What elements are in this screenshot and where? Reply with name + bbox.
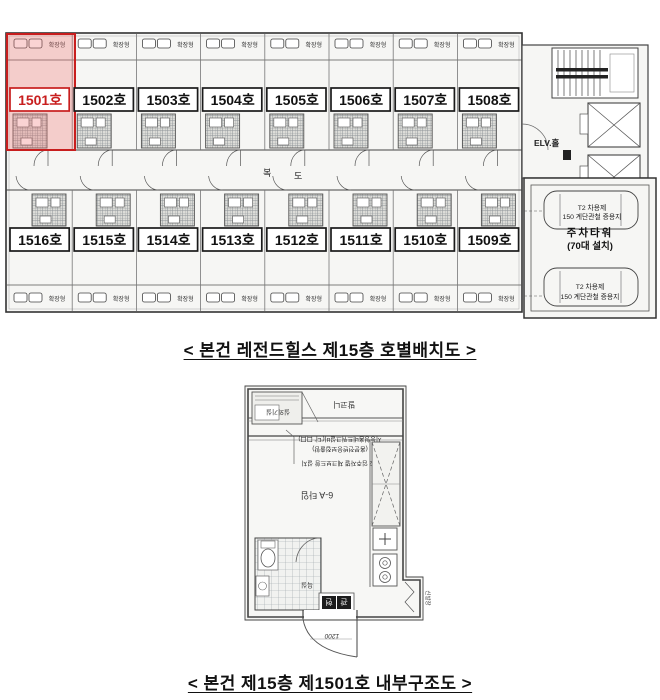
parking-note-bottom-1: T2 차용제 (576, 282, 605, 291)
strip-label: 확장형 (241, 41, 258, 49)
entrance-char-2: 관 (340, 597, 348, 607)
strip-label: 확장형 (434, 295, 451, 303)
unit-label: 1505호 (275, 92, 319, 108)
unit-label: 1513호 (211, 232, 255, 248)
note-line-1: 지능형홈네트워크설비('디' 口口) (298, 435, 381, 443)
strip-label: 확장형 (306, 41, 323, 49)
note-line-3: T/2 입주자별 체크보드함 설치 (302, 459, 379, 467)
ac-unit-icon (414, 39, 427, 48)
unit-label: 1515호 (82, 232, 126, 248)
ac-unit-icon (157, 293, 170, 302)
ac-unit-icon (207, 293, 220, 302)
bathroom: 욕실 (255, 538, 321, 610)
ac-unit-icon (78, 293, 91, 302)
document-page: 확장형확장형확장형확장형확장형확장형확장형확장형확장형확장형확장형확장형확장형확… (0, 0, 660, 700)
ac-unit-icon (142, 39, 155, 48)
elevator-shaft-1 (580, 103, 640, 147)
ac-unit-icon (399, 39, 412, 48)
room-type-label: 6-A 타입 (301, 490, 334, 501)
balcony-label: 발코니 (333, 400, 355, 410)
unit-label: 1503호 (146, 92, 190, 108)
strip-label: 확장형 (306, 295, 323, 303)
ac-unit-icon (478, 39, 491, 48)
outdoor-unit-room-label: 실외기실 (266, 408, 290, 417)
ac-unit-icon (335, 293, 348, 302)
entrance-label: 현 관 (319, 593, 354, 612)
parking-title: 주차타워 (567, 226, 614, 239)
ac-unit-icon (286, 293, 299, 302)
ac-unit-icon (350, 293, 363, 302)
unit-label: 1507호 (403, 92, 447, 108)
ac-unit-icon (286, 39, 299, 48)
ac-unit-icon (271, 293, 284, 302)
ac-unit-icon (14, 293, 27, 302)
shoe-closet-label: 신발장 (424, 590, 432, 605)
unit-plan-caption: < 본건 제15층 제1501호 내부구조도 > (0, 669, 660, 694)
strip-label: 확장형 (434, 41, 451, 49)
ac-unit-icon (78, 39, 91, 48)
strip-label: 확장형 (370, 295, 387, 303)
bathroom-sink (256, 576, 269, 596)
parking-capacity: (70대 설치) (567, 240, 613, 252)
unit-label: 1506호 (339, 92, 383, 108)
shaft-closet (372, 442, 400, 526)
floor-plan-15f: 확장형확장형확장형확장형확장형확장형확장형확장형확장형확장형확장형확장형확장형확… (0, 28, 660, 324)
unit-label: 1516호 (18, 232, 62, 248)
ac-unit-icon (414, 293, 427, 302)
unit-plan-caption-text: < 본건 제15층 제1501호 내부구조도 > (188, 674, 472, 693)
unit-label: 1514호 (146, 232, 190, 248)
strip-label: 확장형 (177, 41, 194, 49)
ac-unit-icon (29, 293, 42, 302)
strip-label: 확장형 (241, 295, 258, 303)
ac-unit-icon (335, 39, 348, 48)
parking-note-top-2: 150 계단관철 증용지 (563, 212, 622, 221)
strip-label: 확장형 (49, 295, 66, 303)
elevator-hall-label: ELV.홀 (534, 138, 559, 148)
elevator-hall-marker (563, 150, 571, 160)
parking-note-bottom-2: 150 계단관철 증용지 (561, 292, 620, 301)
strip-label: 확장형 (498, 295, 515, 303)
ac-unit-icon (463, 39, 476, 48)
ac-unit-icon (271, 39, 284, 48)
ac-unit-icon (463, 293, 476, 302)
unit-label: 1508호 (467, 92, 511, 108)
bathroom-label: 욕실 (301, 581, 313, 590)
unit-label: 1512호 (275, 232, 319, 248)
toilet (261, 549, 275, 567)
unit-label: 1504호 (211, 92, 255, 108)
ac-unit-icon (478, 293, 491, 302)
strip-label: 확장형 (370, 41, 387, 49)
entrance-char-1: 현 (325, 597, 332, 606)
ac-unit-icon (93, 39, 106, 48)
door-width-dimension: 1200 (324, 632, 339, 639)
ac-unit-icon (222, 293, 235, 302)
unit-label: 1502호 (82, 92, 126, 108)
strip-label: 확장형 (177, 295, 194, 303)
ac-unit-icon (207, 39, 220, 48)
entrance-door: 1200 (303, 610, 357, 657)
ac-unit-icon (157, 39, 170, 48)
unit-label: 1509호 (467, 232, 511, 248)
unit-label: 1501호 (18, 92, 62, 108)
ac-unit-icon (142, 293, 155, 302)
unit-label: 1510호 (403, 232, 447, 248)
ac-unit-icon (222, 39, 235, 48)
unit-plan-1501: 발코니 실외기실 지능형홈네트워크설비('디' 口口) (홈분전반응보접출함) … (222, 380, 438, 666)
ac-unit-icon (350, 39, 363, 48)
parking-tower: T2 차용제 150 계단관철 증용지 주차타워 (70대 설치) T2 차용제… (524, 178, 656, 318)
unit-label: 1511호 (339, 232, 382, 248)
stair-elevator-annex: ELV.홀 (522, 45, 648, 199)
staircase (552, 48, 638, 98)
floor-plan-caption: < 본건 레전드힐스 제15층 호별배치도 > (0, 336, 660, 361)
strip-label: 확장형 (113, 295, 130, 303)
strip-label: 확장형 (498, 41, 515, 49)
toilet-tank (261, 541, 275, 548)
parking-note-top-1: T2 차용제 (578, 203, 607, 212)
corridor-label-1: 복 (263, 168, 271, 178)
ac-unit-icon (93, 293, 106, 302)
floor-plan-caption-text: < 본건 레전드힐스 제15층 호별배치도 > (184, 341, 477, 360)
corridor-label-2: 도 (294, 171, 302, 181)
note-line-2: (홈분전반응보접출함) (312, 445, 367, 453)
strip-label: 확장형 (113, 41, 130, 49)
ac-unit-icon (399, 293, 412, 302)
